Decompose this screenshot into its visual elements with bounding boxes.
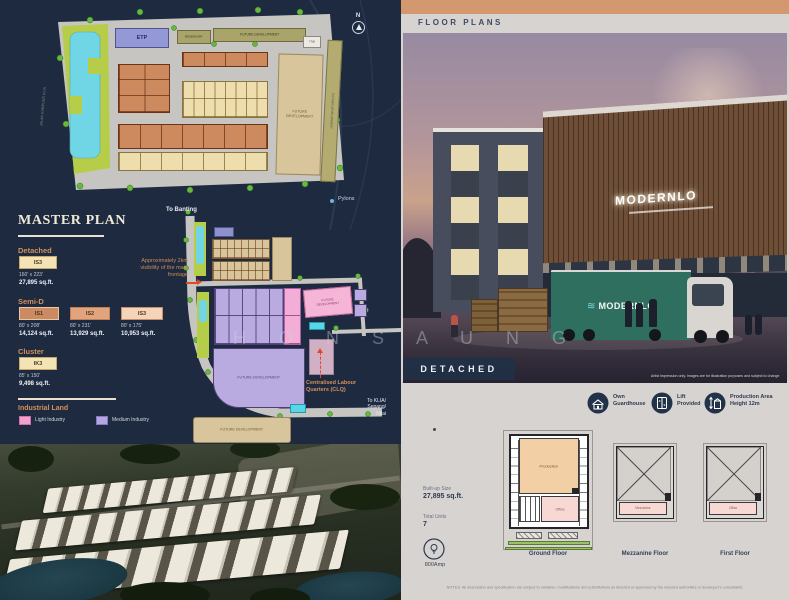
- person-silhouette-5: [755, 314, 762, 335]
- gf-left-bays: [511, 440, 519, 526]
- clq-label: Centralised Labour Quarters (CLQ): [306, 380, 356, 394]
- ff-void-cross: [707, 447, 761, 501]
- etp-block: ETP: [115, 28, 169, 48]
- road-reserve-label: FUTURE DEVELOPMENT: [329, 93, 334, 129]
- compass-n-label: N: [351, 13, 365, 19]
- detached-badge-label: DETACHED: [420, 364, 497, 374]
- future-development-big-label: FUTURE DEVELOPMENT: [238, 376, 281, 380]
- tree-blob-5: [120, 582, 210, 600]
- pond-right: [294, 567, 401, 600]
- truck-wheel-5: [716, 330, 729, 343]
- feature-guardhouse: [587, 392, 609, 414]
- truck-wave-icon: ≋: [587, 301, 595, 312]
- top-accent-bar: [401, 0, 789, 14]
- compass: N: [351, 13, 365, 39]
- gf-production-label: Production: [540, 464, 558, 468]
- gf-office-area: Office: [541, 496, 579, 522]
- semid-lot-grid-a: [118, 64, 170, 113]
- future-development-pink-block: FUTURE DEVELOPMENT: [303, 286, 353, 318]
- semid-lot-row-b: [182, 52, 268, 67]
- ground-floor-plan: Production Office: [503, 430, 593, 550]
- reservoir-label: RESERVOIR: [185, 36, 203, 39]
- etp-label: ETP: [137, 35, 148, 41]
- truck-wheel-3: [649, 329, 661, 341]
- total-units-label: Total Units: [423, 514, 446, 520]
- first-floor-label: First Floor: [703, 551, 767, 557]
- gf-production-area: Production: [519, 438, 579, 494]
- gf-stair-core: [572, 488, 579, 494]
- semid-lot-row-d: [118, 124, 268, 149]
- detached-lot-row-e: [118, 152, 268, 171]
- reservoir-block: RESERVOIR: [177, 30, 211, 44]
- visibility-note: Approximately 2km visibility of the main…: [110, 258, 188, 279]
- feature-height: [704, 392, 726, 414]
- feature-lift: [651, 392, 673, 414]
- gf-dock-hatch: [519, 496, 540, 522]
- truck-wheel-2: [583, 329, 595, 341]
- clq-arrow: [320, 352, 321, 378]
- ff-stair-core: [755, 493, 761, 501]
- watermark: H O N S A U N G: [233, 328, 580, 349]
- to-klia-label: To KLIA/ Sepang/ Nilai: [350, 398, 386, 417]
- future-development-top-block: FUTURE DEVELOPMENT: [213, 28, 306, 42]
- gf-right-bays: [579, 440, 587, 526]
- detached-badge: DETACHED: [403, 358, 515, 380]
- ff-building-outline: Office: [706, 446, 764, 519]
- to-banting-label: To Banting: [166, 207, 197, 213]
- future-development-bottom-label: FUTURE DEVELOPMENT: [221, 428, 264, 432]
- render-caption: Artist impression only. Images are for i…: [651, 374, 779, 378]
- mz-building-outline: Mezzanine: [616, 446, 674, 519]
- person-silhouette-1: [625, 301, 632, 327]
- truck-windshield: [692, 284, 724, 306]
- tree-blob-1: [8, 446, 54, 472]
- mz-room-label: Mezzanine: [635, 507, 650, 510]
- compass-needle-icon: [356, 24, 362, 30]
- mini-lot-block-1: [212, 239, 270, 259]
- left-tower-windows-2: [498, 145, 528, 300]
- mini-lot-block-2: [212, 261, 270, 281]
- medium-industry-mini-2: [354, 304, 367, 317]
- medium-industry-mini-1: [354, 289, 367, 301]
- detached-lot-grid-c: [182, 81, 268, 118]
- plan-north-dot: [433, 428, 436, 431]
- visibility-arrowhead-icon: [197, 279, 202, 285]
- production-height-icon: [704, 392, 726, 414]
- timber-facade: [543, 94, 787, 279]
- aerial-render: [0, 444, 401, 600]
- guardhouse-icon: [587, 392, 609, 414]
- lightbulb-icon: [423, 538, 445, 560]
- gf-office-label: Office: [555, 507, 564, 511]
- ff-room-label: Office: [729, 507, 737, 510]
- first-floor-plan: Office: [703, 443, 767, 522]
- future-development-big-block: FUTURE DEVELOPMENT: [213, 348, 305, 408]
- future-development-tall-label: FUTURE DEVELOPMENT: [286, 109, 313, 119]
- disclaimer-note: NOTES: All description and specification…: [447, 586, 744, 590]
- future-development-top-label: FUTURE DEVELOPMENT: [240, 33, 279, 36]
- amp-value: 800Amp: [415, 562, 455, 568]
- gf-ramp-2: [548, 532, 578, 539]
- compass-circle: [352, 21, 365, 34]
- map2-lake-1: [196, 226, 204, 264]
- mezzanine-floor-plan: Mezzanine: [613, 443, 677, 522]
- total-units-value: 7: [423, 521, 427, 528]
- mini-future-column: [272, 237, 292, 281]
- mz-void-cross: [617, 447, 671, 501]
- tree-blob-2: [120, 444, 180, 464]
- person-silhouette-3: [649, 299, 657, 327]
- future-development-pink-label: FUTURE DEVELOPMENT: [316, 297, 339, 306]
- tnb-label: TNB: [309, 41, 315, 44]
- map2-lake-2: [199, 300, 207, 322]
- truck-wheel-4: [694, 330, 707, 343]
- gf-building-outline: Production Office: [509, 434, 589, 529]
- left-tower-windows-1: [451, 145, 479, 300]
- gf-landscape-strip-1: [508, 541, 590, 545]
- tree-blob-4: [330, 484, 400, 510]
- built-up-value: 27,895 sq.ft.: [423, 493, 463, 500]
- ground-floor-label: Ground Floor: [503, 551, 593, 557]
- mz-room: Mezzanine: [619, 502, 667, 515]
- lift-icon: [651, 392, 673, 414]
- mz-stair-core: [665, 493, 671, 501]
- amp-icon-wrap: [423, 538, 445, 560]
- gf-ramp-1: [516, 532, 542, 539]
- floor-plans-header: FLOOR PLANS: [418, 18, 503, 27]
- built-up-label: Built-up Size: [423, 486, 451, 492]
- person-silhouette-2: [636, 303, 643, 327]
- mini-etp-block: [214, 227, 234, 237]
- gf-landscape-strip-2: [505, 547, 592, 550]
- future-development-tall-block: FUTURE DEVELOPMENT: [275, 53, 323, 175]
- ff-room: Office: [709, 502, 757, 515]
- tnb-block: TNB: [303, 36, 321, 48]
- cyan-utility-block-2: [290, 404, 306, 413]
- mezzanine-floor-label: Mezzanine Floor: [613, 551, 677, 557]
- future-development-bottom-block: FUTURE DEVELOPMENT: [193, 417, 291, 443]
- feature-height-label: Production Area Height 12m: [730, 394, 786, 407]
- pallet-stack-1: [498, 288, 548, 332]
- brochure-page: ETP RESERVOIR FUTURE DEVELOPMENT TNB FUT…: [0, 0, 789, 600]
- person-silhouette-4: [745, 315, 752, 335]
- floor-plans-panel: FLOOR PLANS MODERNLO ≋: [401, 0, 789, 600]
- master-plan-panel: ETP RESERVOIR FUTURE DEVELOPMENT TNB FUT…: [0, 0, 401, 600]
